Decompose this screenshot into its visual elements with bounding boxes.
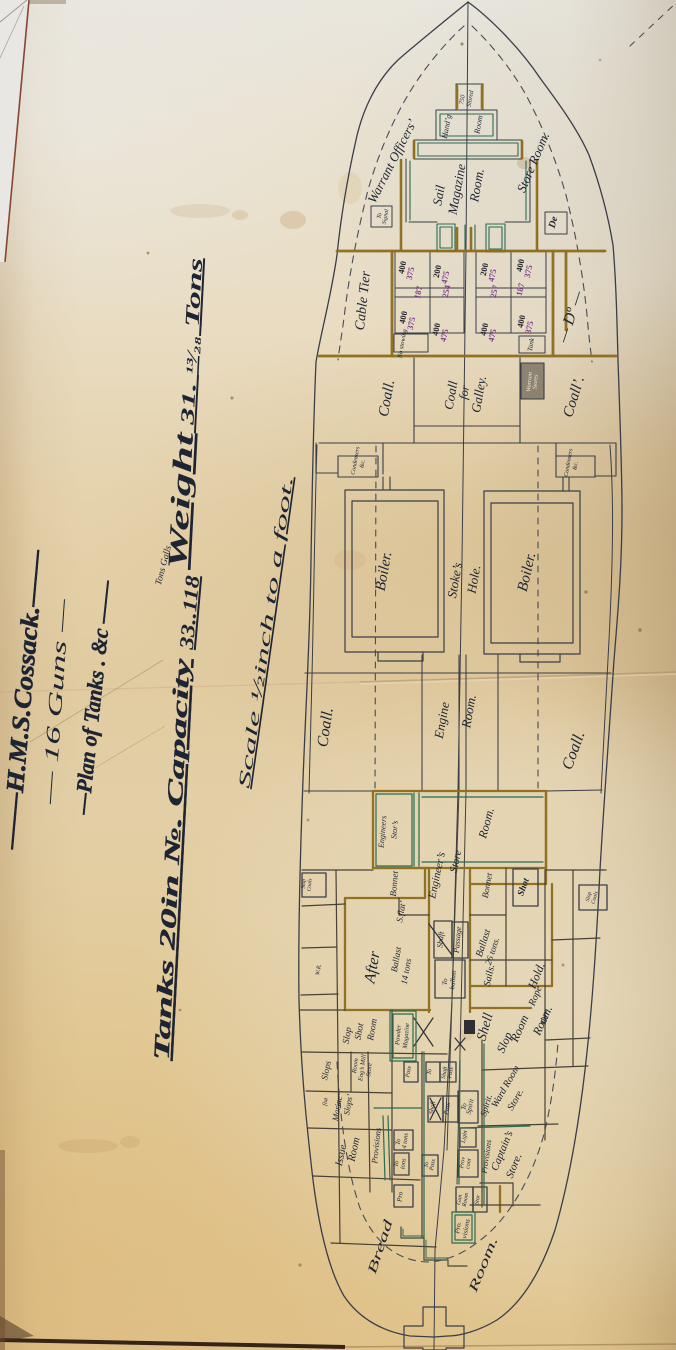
- svg-text:flat: flat: [321, 1097, 329, 1106]
- svg-text:Stor’s: Stor’s: [389, 820, 400, 839]
- svg-text:To: To: [427, 1068, 434, 1075]
- svg-text:ions: ions: [399, 1158, 407, 1170]
- svg-text:Pro: Pro: [395, 1191, 404, 1204]
- svg-text:Shaft: Shaft: [435, 930, 445, 948]
- svg-text:Coals: Coals: [306, 878, 313, 891]
